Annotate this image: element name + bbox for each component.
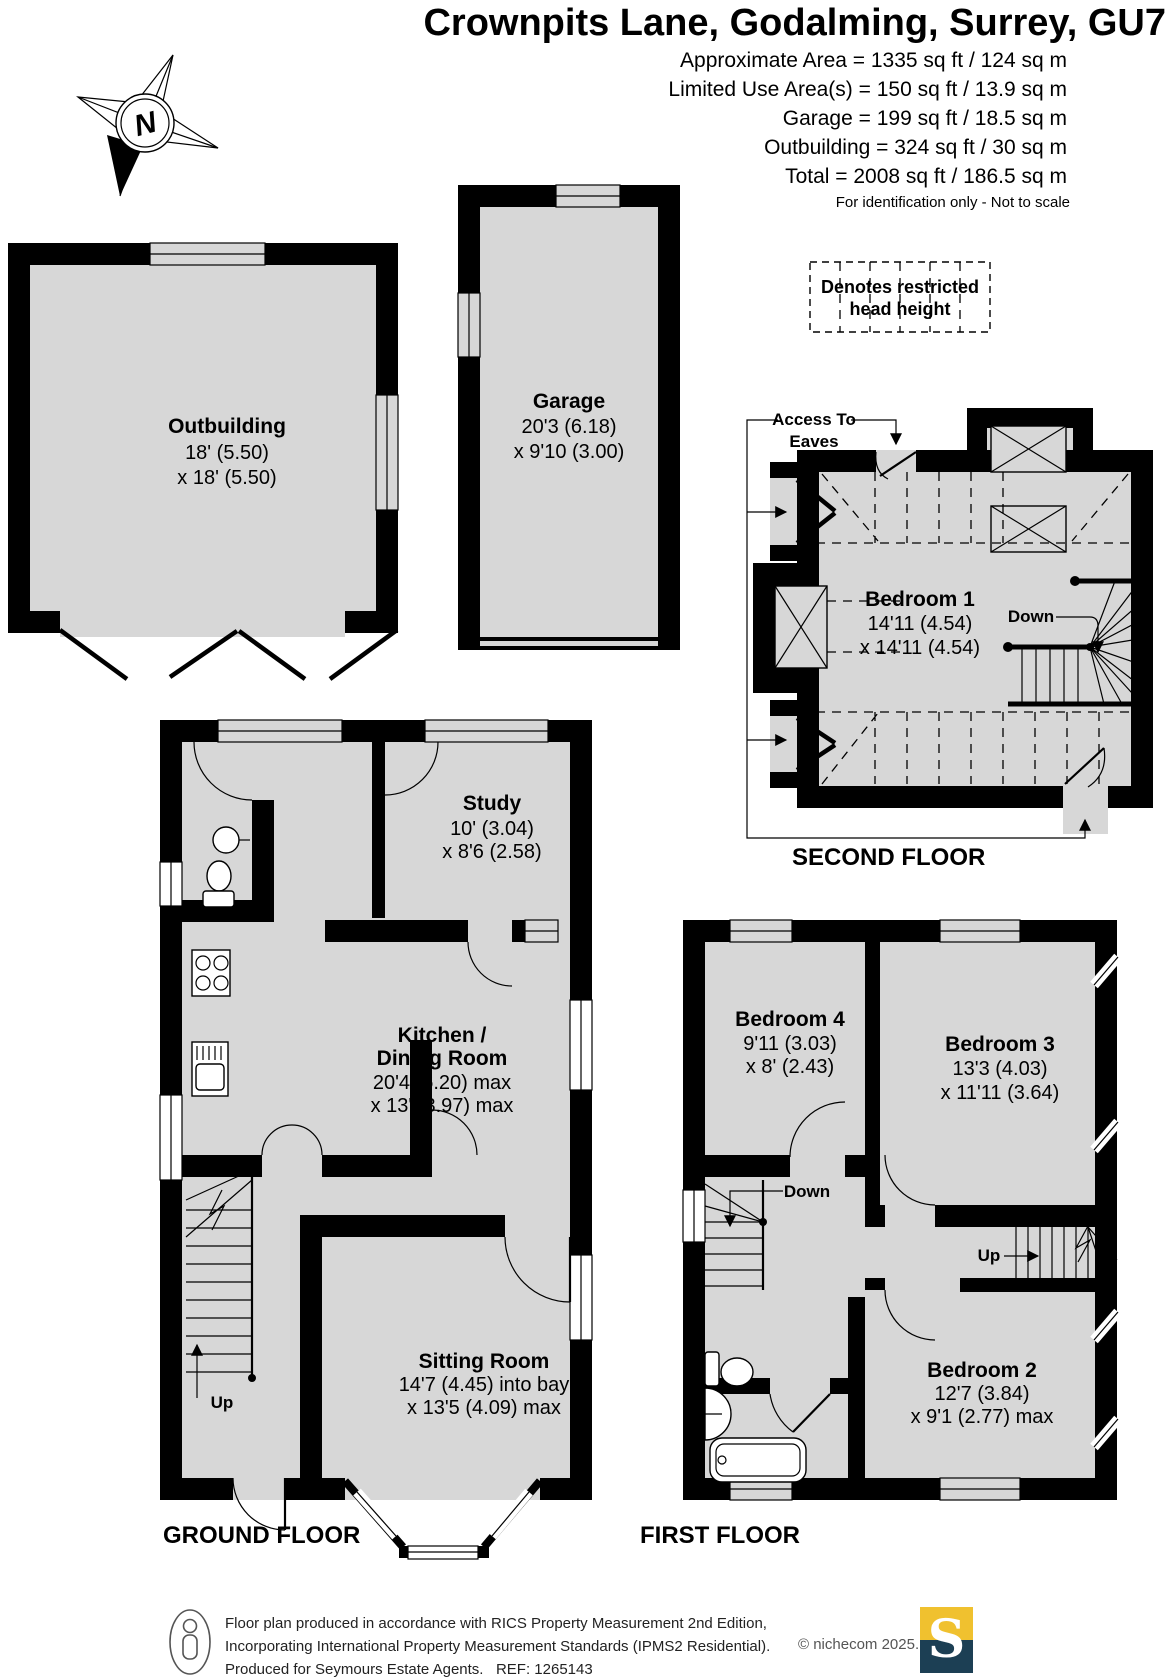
legend-text-line2: head height bbox=[849, 299, 950, 319]
door-opening bbox=[1063, 786, 1108, 808]
footer-line: Incorporating International Property Mea… bbox=[225, 1635, 770, 1658]
room-name: Outbuilding bbox=[168, 415, 286, 438]
floor bbox=[819, 472, 1131, 786]
access-to-eaves-label: Access To bbox=[772, 410, 856, 429]
study-wall bbox=[325, 920, 468, 942]
room-dim: x 9'10 (3.00) bbox=[514, 441, 625, 463]
floor-label: FIRST FLOOR bbox=[640, 1522, 800, 1549]
garage-plan: Garage 20'3 (6.18) x 9'10 (3.00) bbox=[458, 185, 680, 650]
door-opening bbox=[60, 611, 345, 637]
seymours-logo: S bbox=[920, 1607, 973, 1673]
room-name: Kitchen / bbox=[398, 1024, 487, 1047]
room-name: Bedroom 2 bbox=[927, 1359, 1037, 1382]
toilet-cistern bbox=[203, 891, 234, 907]
floor bbox=[30, 265, 376, 611]
outbuilding-plan: Outbuilding 18' (5.50) x 18' (5.50) bbox=[8, 243, 398, 679]
floor-label: SECOND FLOOR bbox=[792, 844, 985, 871]
person-icon-head bbox=[184, 1620, 197, 1633]
room-dim: 20'4 (6.20) max bbox=[373, 1072, 511, 1094]
study-wall bbox=[372, 742, 385, 918]
floorplan-canvas: N Denotes restricted head height Outbuil… bbox=[0, 0, 1168, 1680]
person-icon-body bbox=[183, 1635, 197, 1659]
room-name: Study bbox=[463, 792, 522, 815]
second-floor-plan: Bedroom 1 14'11 (4.54) x 14'11 (4.54) Ac… bbox=[747, 408, 1153, 871]
copyright-text: © nichecom 2025. bbox=[798, 1636, 919, 1653]
bedroom4-wall bbox=[845, 1155, 865, 1177]
bedroom-divider-wall bbox=[865, 942, 880, 1227]
stair-newel bbox=[1003, 642, 1013, 652]
basin bbox=[213, 827, 239, 853]
study-wall bbox=[512, 920, 525, 942]
landing-wall bbox=[935, 1205, 1117, 1227]
room-dim: 14'7 (4.45) into bay bbox=[399, 1374, 570, 1396]
up-label: Up bbox=[978, 1246, 1001, 1265]
room-dim: 14'11 (4.54) bbox=[868, 613, 973, 635]
hall-wall bbox=[300, 1237, 322, 1478]
toilet bbox=[721, 1358, 753, 1386]
room-dim: 13'3 (4.03) bbox=[953, 1058, 1048, 1080]
room-dim: x 11'11 (3.64) bbox=[941, 1082, 1060, 1104]
down-label: Down bbox=[784, 1182, 830, 1201]
toilet bbox=[207, 861, 231, 891]
room-dim: 18' (5.50) bbox=[185, 442, 269, 464]
room-name: Bedroom 4 bbox=[735, 1008, 845, 1031]
stair-newel bbox=[248, 1374, 256, 1382]
sitting-wall bbox=[300, 1215, 505, 1237]
stair-newel bbox=[1070, 576, 1080, 586]
eaves-jamb bbox=[770, 462, 797, 478]
room-dim: x 9'1 (2.77) max bbox=[911, 1406, 1054, 1428]
bedroom2-wall bbox=[960, 1278, 1117, 1292]
bedroom4-wall bbox=[705, 1155, 790, 1177]
eaves-jamb bbox=[770, 545, 797, 561]
room-dim: 20'3 (6.18) bbox=[522, 416, 617, 438]
room-dim: 10' (3.04) bbox=[450, 818, 534, 840]
folding-doors bbox=[60, 630, 397, 679]
bay-opening bbox=[345, 1478, 540, 1500]
footer-disclaimer: Floor plan produced in accordance with R… bbox=[225, 1612, 770, 1680]
room-dim: x 8' (2.43) bbox=[746, 1056, 834, 1078]
eaves-access-recess bbox=[770, 716, 797, 772]
bathroom-wall bbox=[848, 1297, 865, 1500]
room-name: Dining Room bbox=[377, 1047, 508, 1070]
floorplan-page: Crownpits Lane, Godalming, Surrey, GU7 A… bbox=[0, 0, 1168, 1680]
bedroom2-wall bbox=[865, 1278, 885, 1290]
legend-text-line1: Denotes restricted bbox=[821, 277, 979, 297]
logo-letter: S bbox=[920, 1607, 973, 1673]
eaves-jamb bbox=[770, 700, 797, 716]
stair-newel bbox=[759, 1218, 767, 1226]
hall-wall bbox=[322, 1155, 420, 1177]
first-floor-plan: Up Down bbox=[640, 920, 1118, 1549]
access-to-eaves-label: Eaves bbox=[789, 432, 838, 451]
hall-wall bbox=[182, 1155, 262, 1177]
room-dim: x 13' (3.97) max bbox=[371, 1095, 514, 1117]
room-dim: 9'11 (3.03) bbox=[743, 1033, 837, 1055]
footer-line: Produced for Seymours Estate Agents. REF… bbox=[225, 1658, 770, 1680]
eaves-jamb bbox=[770, 772, 797, 788]
restricted-head-height-legend: Denotes restricted head height bbox=[810, 262, 990, 332]
room-dim: x 8'6 (2.58) bbox=[442, 841, 541, 863]
sink-bowl bbox=[196, 1064, 224, 1090]
ground-floor-plan: Up Study 10' (3.04) x 8'6 (2.58) Kitchen… bbox=[160, 720, 592, 1559]
toilet-cistern bbox=[705, 1352, 719, 1386]
compass-rose-icon: N bbox=[78, 55, 218, 196]
door-opening bbox=[233, 1478, 285, 1500]
down-label: Down bbox=[1008, 607, 1054, 626]
room-name: Garage bbox=[533, 390, 605, 413]
room-name: Bedroom 1 bbox=[865, 588, 975, 611]
footer-line: Floor plan produced in accordance with R… bbox=[225, 1612, 770, 1635]
annotation-arrow bbox=[851, 420, 896, 444]
floor-label: GROUND FLOOR bbox=[163, 1522, 360, 1549]
room-dim: 12'7 (3.84) bbox=[935, 1383, 1030, 1405]
landing-wall bbox=[865, 1205, 885, 1227]
room-dim: x 13'5 (4.09) max bbox=[407, 1397, 561, 1419]
room-dim: x 14'11 (4.54) bbox=[860, 637, 980, 659]
room-name: Bedroom 3 bbox=[945, 1033, 1055, 1056]
door-opening bbox=[876, 450, 916, 472]
up-label: Up bbox=[211, 1393, 234, 1412]
person-icon bbox=[170, 1610, 210, 1674]
room-dim: x 18' (5.50) bbox=[177, 467, 276, 489]
bathroom-wall bbox=[830, 1378, 848, 1394]
room-name: Sitting Room bbox=[419, 1350, 550, 1373]
